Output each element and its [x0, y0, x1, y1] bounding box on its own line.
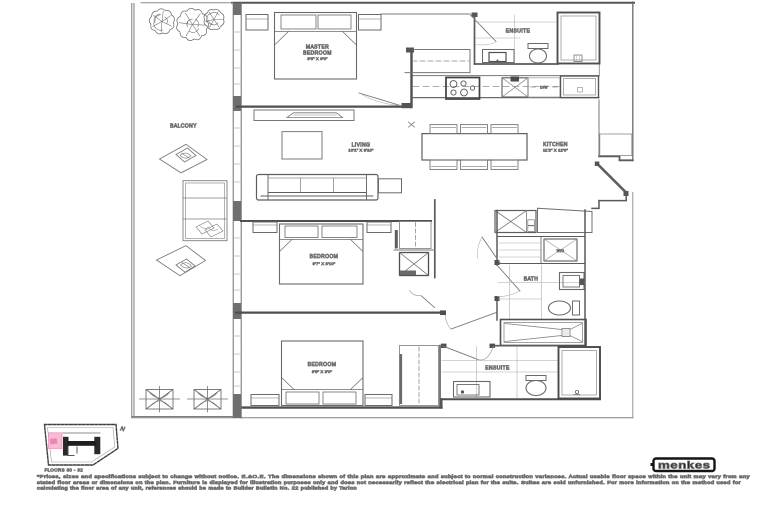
- svg-text:BEDROOM: BEDROOM: [308, 362, 337, 368]
- svg-text:BALCONY: BALCONY: [170, 124, 197, 130]
- svg-text:*Prices, sizes and specificati: *Prices, sizes and specifications subjec…: [37, 474, 751, 479]
- svg-text:W/D: W/D: [557, 249, 565, 253]
- svg-text:FLOORS 30 - 32: FLOORS 30 - 32: [45, 468, 84, 473]
- svg-text:9'7" X 8'10": 9'7" X 8'10": [313, 261, 336, 266]
- svg-text:stated floor areas or dimensio: stated floor areas or dimensions on the …: [37, 480, 741, 485]
- svg-text:10'1" X 8'10": 10'1" X 8'10": [348, 148, 374, 153]
- svg-text:9'5" X 9'0": 9'5" X 9'0": [312, 369, 333, 374]
- svg-text:ENSUITE: ENSUITE: [485, 366, 510, 372]
- svg-text:calculating the floor area of: calculating the floor area of any unit, …: [37, 485, 357, 490]
- svg-text:menkes: menkes: [658, 460, 711, 471]
- svg-text:11'2" X 12'0": 11'2" X 12'0": [543, 147, 568, 152]
- svg-text:D/W: D/W: [540, 86, 548, 90]
- svg-text:N: N: [120, 426, 126, 433]
- svg-text:ENSUITE: ENSUITE: [506, 29, 531, 35]
- svg-text:9'6" X 9'0": 9'6" X 9'0": [307, 56, 328, 61]
- svg-text:BATH: BATH: [524, 277, 539, 283]
- svg-text:BEDROOM: BEDROOM: [310, 254, 339, 260]
